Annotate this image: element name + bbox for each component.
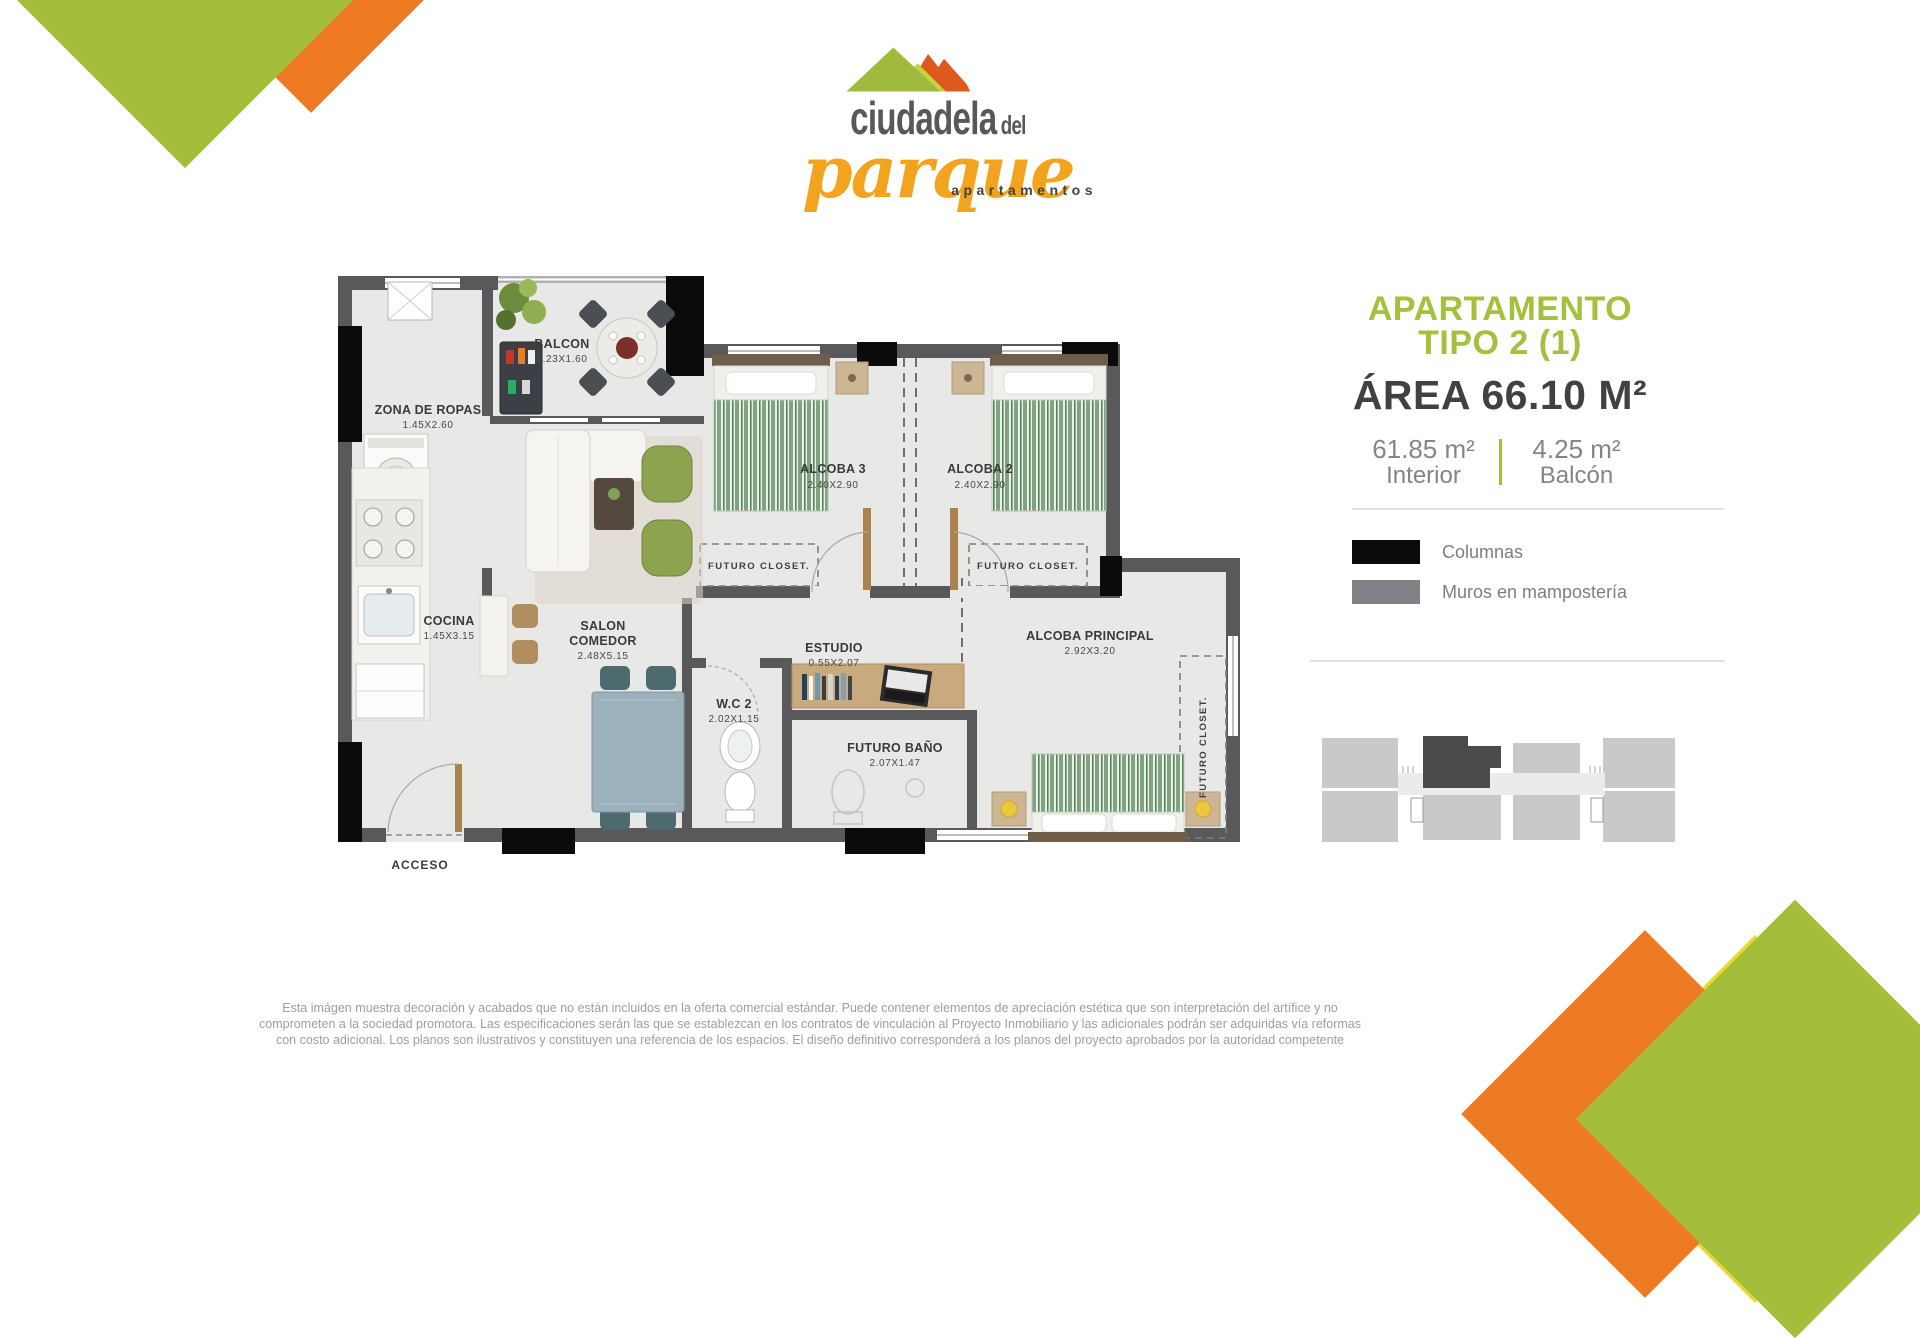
floorplan-diagram: ZONA DE ROPAS 1.45X2.60 BALCON 2.23X1.60… — [330, 268, 1250, 883]
interior-area: 61.85 m² Interior — [1349, 435, 1499, 489]
room-name: ESTUDIO — [805, 641, 863, 655]
room-dims: 2.40X2.90 — [955, 480, 1006, 491]
access-label: ACCESO — [391, 858, 448, 872]
apartment-type-title-line1: APARTAMENTO — [1330, 292, 1670, 326]
plan-shaft — [388, 282, 432, 320]
building-joint — [1603, 788, 1675, 791]
highlighted-unit — [1423, 736, 1501, 788]
brand-tagline: apartamentos — [951, 182, 1097, 198]
room-dims: 2.02X1.15 — [709, 714, 760, 725]
legend-swatch-muros — [1352, 580, 1420, 604]
divider-line — [1352, 508, 1724, 510]
room-name: SALON — [580, 619, 625, 633]
interior-area-value: 61.85 m² — [1349, 435, 1499, 463]
balcony-area: 4.25 m² Balcón — [1502, 435, 1652, 489]
room-name: ALCOBA 3 — [800, 462, 866, 476]
futuro-closet-label: FUTURO CLOSET. — [1198, 696, 1209, 798]
legend-label: Muros en mampostería — [1442, 582, 1627, 603]
room-dims: 2.92X3.20 — [1065, 646, 1116, 657]
apartment-area-title: ÁREA 66.10 M² — [1330, 372, 1670, 419]
legend-label: Columnas — [1442, 542, 1523, 563]
room-dims: 2.07X1.47 — [870, 758, 921, 769]
disclaimer: Esta imágen muestra decoración y acabado… — [230, 1000, 1390, 1048]
room-name: COMEDOR — [569, 634, 636, 648]
room-dims: 2.40X2.90 — [808, 480, 859, 491]
brand-logo: ciudadeladel parque apartamentos — [822, 42, 1122, 209]
kitchen-counter — [352, 468, 430, 720]
mountains-icon — [839, 42, 989, 96]
room-name: ALCOBA PRINCIPAL — [1026, 629, 1154, 643]
room-dims: 2.48X5.15 — [578, 651, 629, 662]
futuro-closet-label: FUTURO CLOSET. — [708, 561, 810, 572]
apartment-type-title-line2: TIPO 2 (1) — [1330, 326, 1670, 360]
divider-line — [1310, 660, 1725, 662]
study-desk — [792, 664, 964, 708]
building-joint — [1322, 788, 1398, 791]
legend-item-muros: Muros en mampostería — [1352, 580, 1724, 604]
balcony-area-label: Balcón — [1502, 463, 1652, 489]
legend-item-columnas: Columnas — [1352, 540, 1724, 564]
disclaimer-line: con costo adicional. Los planos son ilus… — [230, 1032, 1390, 1048]
balcony-area-value: 4.25 m² — [1502, 435, 1652, 463]
room-dims: 1.45X3.15 — [424, 631, 475, 642]
legend-swatch-columnas — [1352, 540, 1420, 564]
room-name: FUTURO BAÑO — [847, 740, 943, 755]
room-name: BALCON — [534, 337, 589, 351]
room-dims: 0.55X2.07 — [809, 658, 860, 669]
interior-area-label: Interior — [1349, 463, 1499, 489]
living-room-furniture — [526, 430, 703, 604]
room-dims: 2.23X1.60 — [537, 354, 588, 365]
disclaimer-line: comprometen a la sociedad promotora. Las… — [230, 1016, 1390, 1032]
disclaimer-line: Esta imágen muestra decoración y acabado… — [230, 1000, 1390, 1016]
futuro-closet-label: FUTURO CLOSET. — [977, 561, 1079, 572]
plan-legend: Columnas Muros en mampostería — [1352, 540, 1724, 620]
building-locator — [1308, 678, 1723, 878]
room-name: ZONA DE ROPAS — [375, 403, 482, 417]
room-name: W.C 2 — [716, 697, 752, 711]
room-name: COCINA — [423, 614, 474, 628]
info-panel: APARTAMENTO TIPO 2 (1) ÁREA 66.10 M² 61.… — [1330, 292, 1670, 489]
area-breakdown: 61.85 m² Interior 4.25 m² Balcón — [1330, 435, 1670, 489]
room-name: ALCOBA 2 — [947, 462, 1013, 476]
room-dims: 1.45X2.60 — [403, 420, 454, 431]
